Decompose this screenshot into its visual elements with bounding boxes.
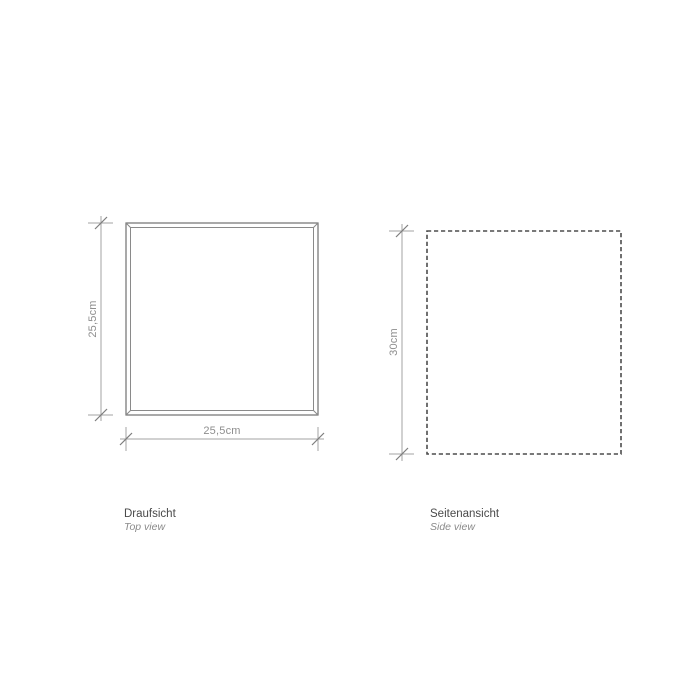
dimension-drawing (0, 0, 700, 700)
top-view-figure (126, 223, 318, 415)
top-view-corner-miters (126, 223, 318, 415)
top-view-caption: Draufsicht Top view (124, 508, 176, 534)
side-view-caption-de: Seitenansicht (430, 508, 499, 521)
side-view-dashed-outline (427, 231, 621, 454)
top-view-inner-frame (131, 228, 314, 411)
top-view-caption-en: Top view (124, 521, 176, 534)
top-view-outer-frame (126, 223, 318, 415)
side-view-figure (427, 231, 621, 454)
top-view-width-dim-label: 25,5cm (203, 425, 240, 437)
technical-drawing-canvas: 25,5cm 25,5cm 30cm Draufsicht Top view S… (0, 0, 700, 700)
side-view-caption-en: Side view (430, 521, 499, 534)
top-view-caption-de: Draufsicht (124, 508, 176, 521)
side-view-height-dim-label: 30cm (388, 328, 400, 356)
side-view-caption: Seitenansicht Side view (430, 508, 499, 534)
top-view-height-dim-label: 25,5cm (87, 300, 99, 337)
